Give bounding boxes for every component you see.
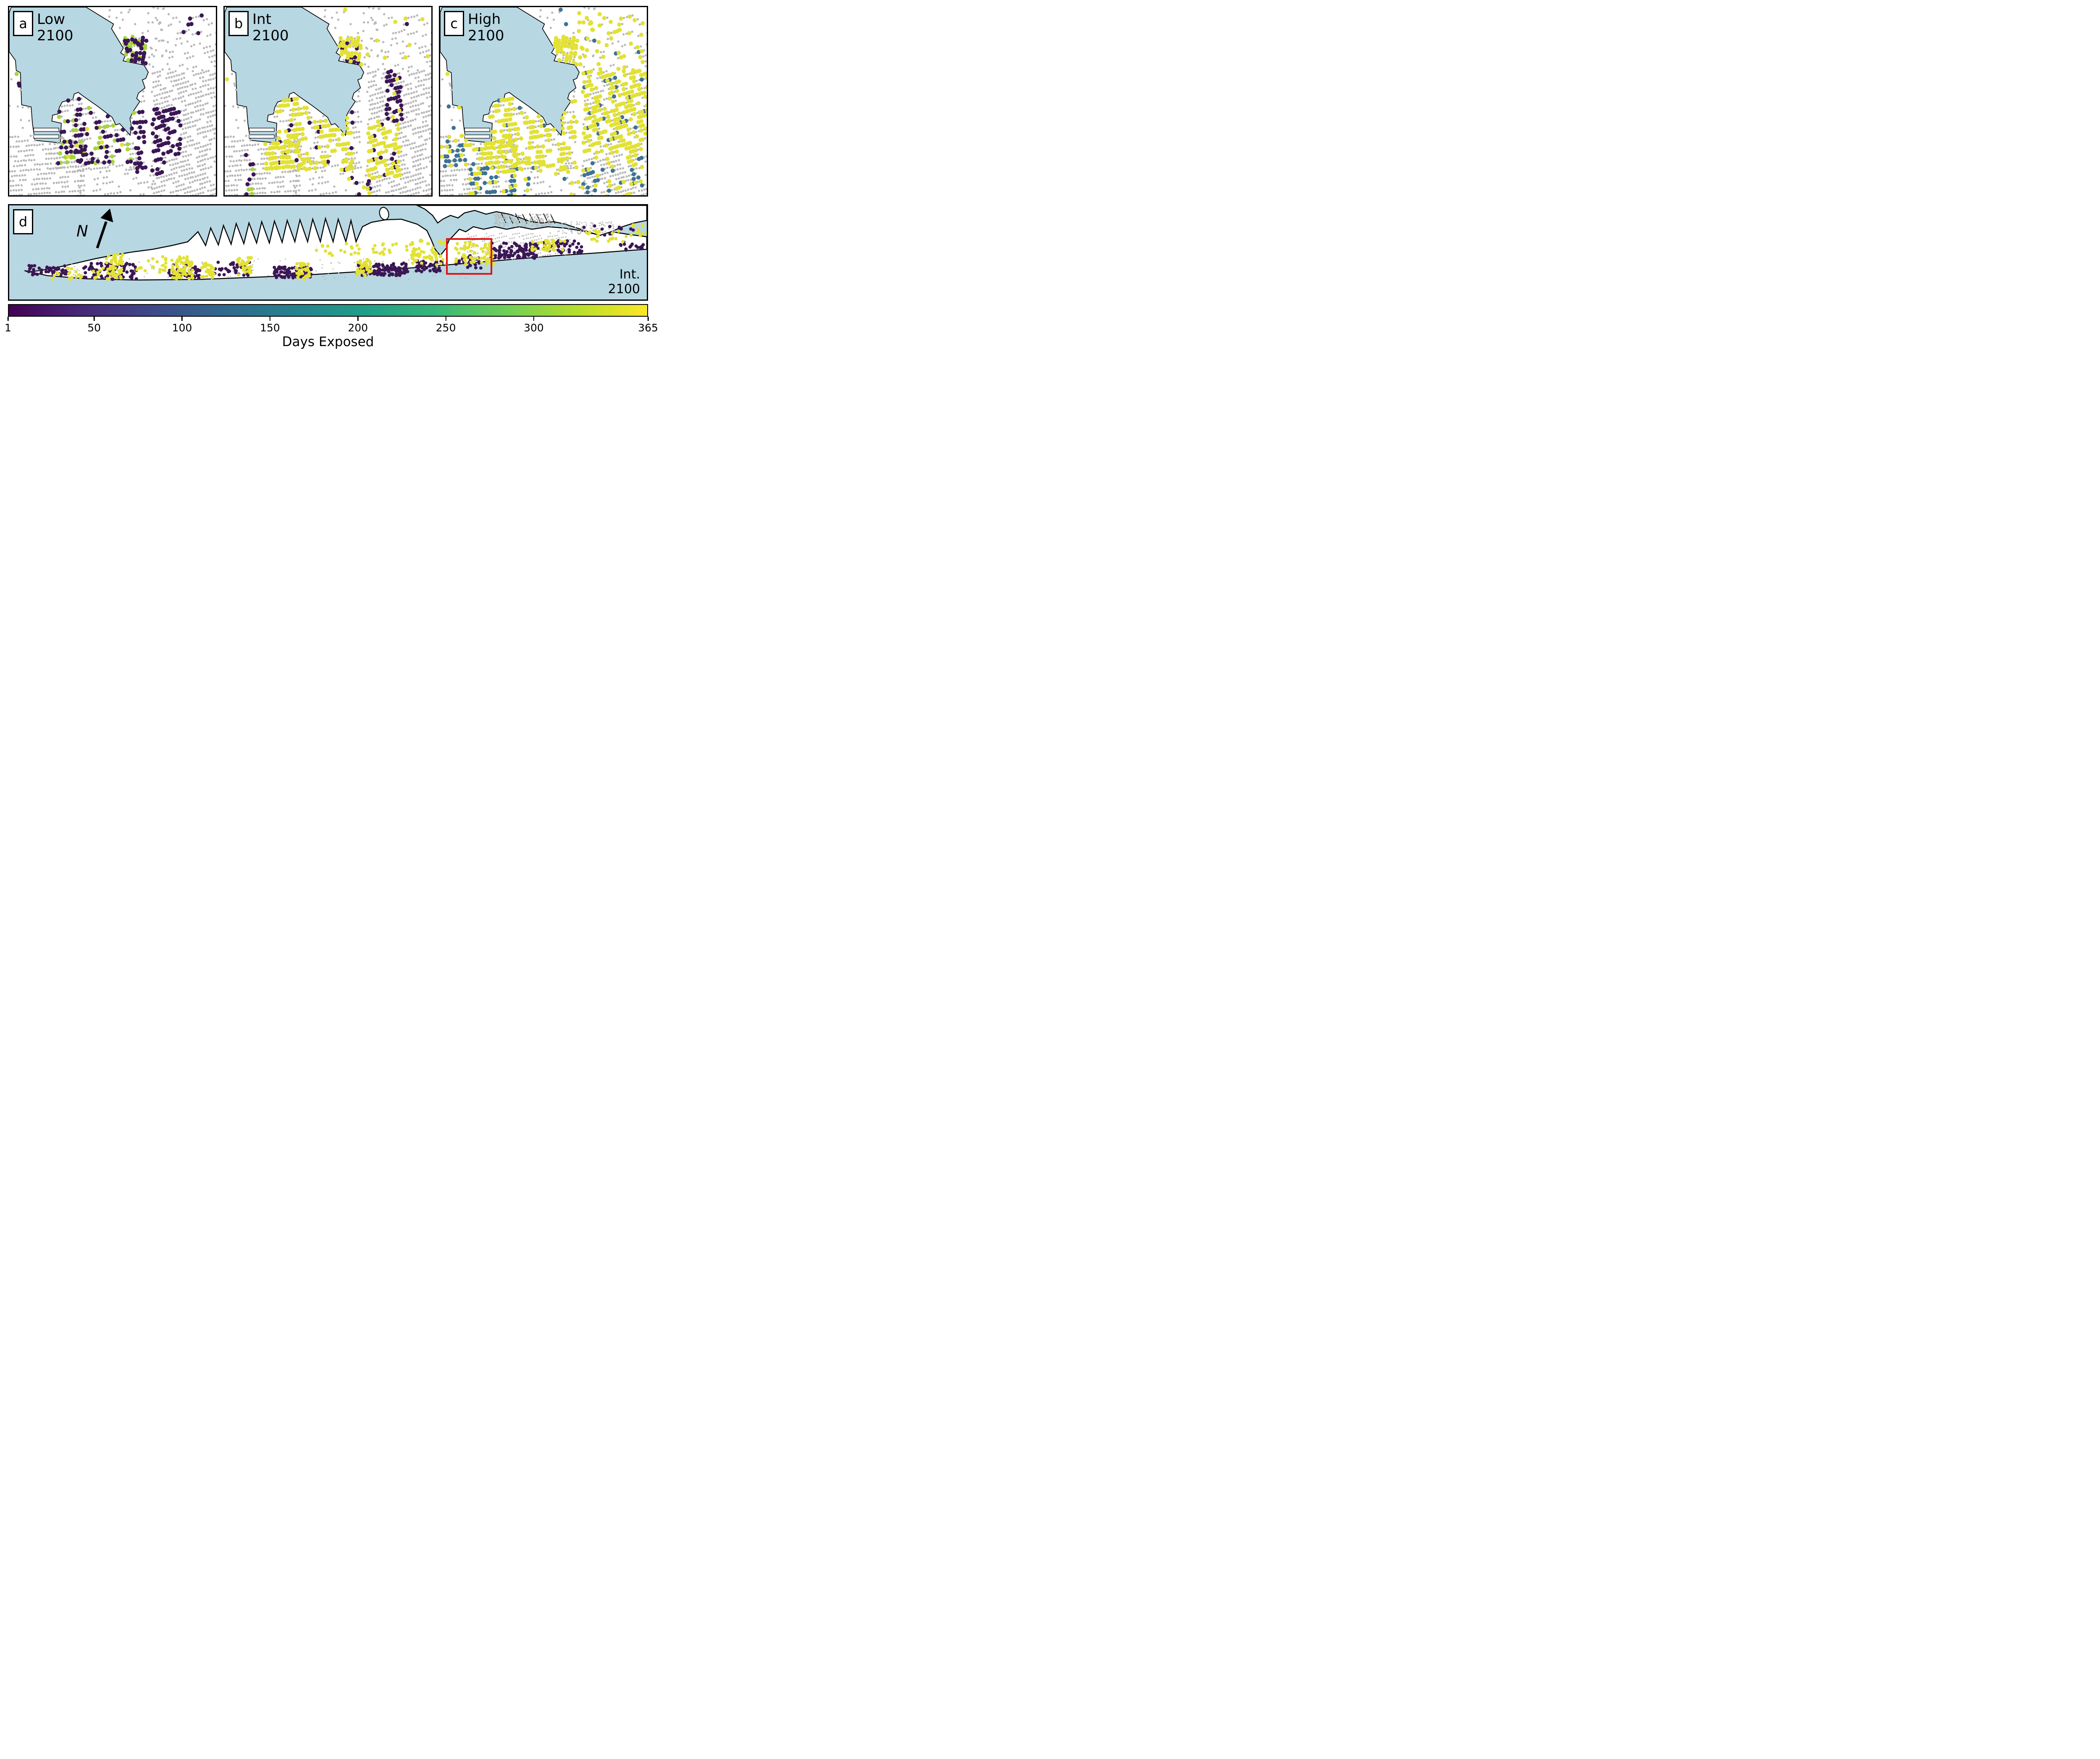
overview-scenario-year: 2100 bbox=[608, 282, 640, 297]
scenario-year-c: 2100 bbox=[468, 28, 504, 44]
panel-int-2100: b Int 2100 bbox=[223, 6, 433, 197]
colorbar-tick bbox=[445, 317, 446, 321]
colorbar bbox=[8, 304, 648, 317]
colorbar-tick bbox=[270, 317, 271, 321]
overview-scenario-label: Int. 2100 bbox=[608, 268, 640, 297]
colorbar-tick-label: 365 bbox=[638, 322, 658, 334]
colorbar-tick-label: 250 bbox=[436, 322, 456, 334]
scenario-year-a: 2100 bbox=[37, 28, 73, 44]
scenario-label-a: Low 2100 bbox=[37, 11, 73, 44]
figure: a Low 2100 b Int 2100 c High 2100 d N bbox=[0, 0, 664, 353]
panel-high-2100: c High 2100 bbox=[439, 6, 648, 197]
colorbar-tick-label: 300 bbox=[524, 322, 544, 334]
panel-overview: d N Int. 2100 bbox=[8, 204, 648, 301]
colorbar-tick-label: 50 bbox=[87, 322, 101, 334]
panel-letter-d: d bbox=[19, 214, 27, 230]
inset-extent-box bbox=[446, 238, 492, 275]
scenario-label-c: High 2100 bbox=[468, 11, 504, 44]
panel-letter-box-b: b bbox=[228, 11, 249, 36]
panel-letter-box-c: c bbox=[444, 11, 464, 36]
colorbar-tick bbox=[8, 317, 9, 321]
panel-letter-b: b bbox=[234, 16, 243, 32]
north-label: N bbox=[76, 222, 88, 240]
colorbar-axis-label: Days Exposed bbox=[8, 334, 648, 349]
scenario-year-b: 2100 bbox=[252, 28, 289, 44]
colorbar-tick-label: 1 bbox=[5, 322, 11, 334]
panel-letter-box-d: d bbox=[13, 209, 33, 234]
overview-scenario-name: Int. bbox=[608, 268, 640, 282]
colorbar-ticks: 150100150200250300365 bbox=[8, 317, 648, 336]
scenario-label-b: Int 2100 bbox=[252, 11, 289, 44]
colorbar-tick-label: 150 bbox=[260, 322, 280, 334]
scenario-name-a: Low bbox=[37, 11, 73, 28]
colorbar-tick bbox=[357, 317, 359, 321]
north-arrow-icon bbox=[87, 209, 114, 249]
panel-low-2100: a Low 2100 bbox=[8, 6, 217, 197]
panel-letter-box-a: a bbox=[13, 11, 33, 36]
colorbar-tick bbox=[94, 317, 95, 321]
colorbar-tick bbox=[181, 317, 183, 321]
scenario-name-c: High bbox=[468, 11, 504, 28]
colorbar-tick-label: 100 bbox=[172, 322, 192, 334]
colorbar-tick-label: 200 bbox=[348, 322, 368, 334]
scenario-name-b: Int bbox=[252, 11, 289, 28]
colorbar-tick bbox=[648, 317, 649, 321]
panel-letter-c: c bbox=[450, 16, 458, 32]
colorbar-tick bbox=[533, 317, 535, 321]
panel-letter-a: a bbox=[19, 16, 27, 32]
